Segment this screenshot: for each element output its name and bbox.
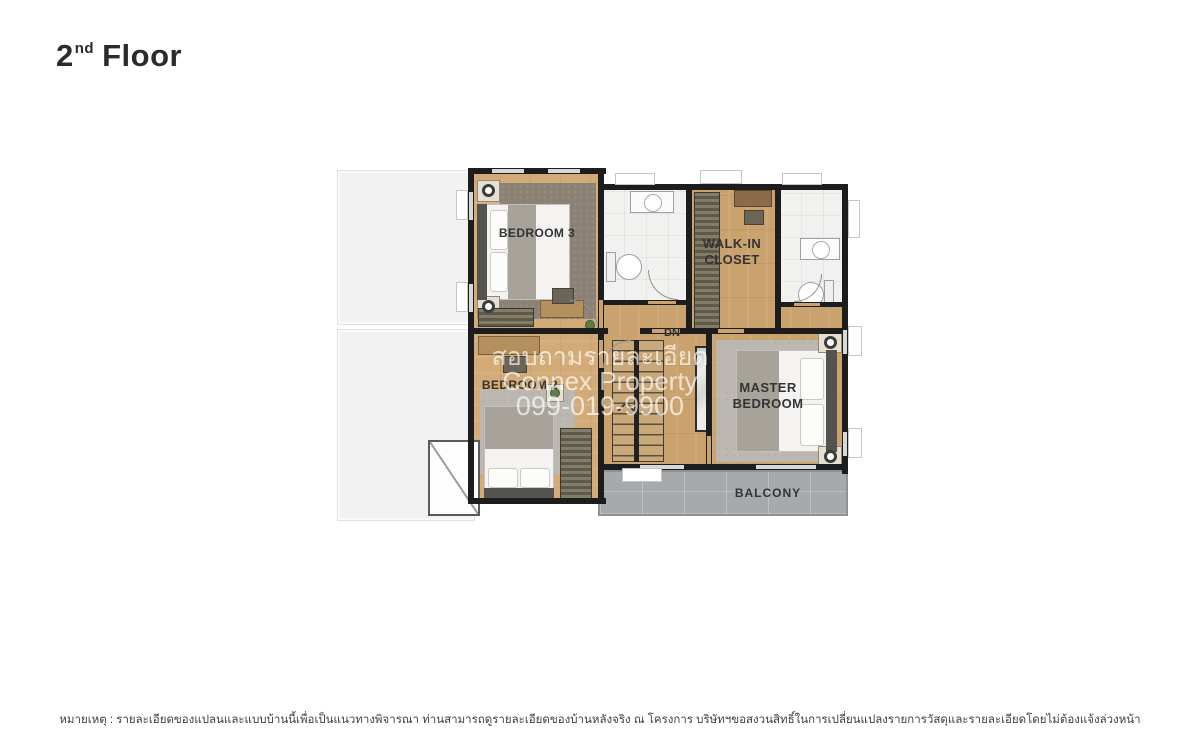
window bbox=[622, 468, 662, 482]
wall-top-bedroom3 bbox=[468, 168, 606, 174]
roof-panel-top bbox=[337, 170, 475, 325]
floor-plan-page: 2ndFloor bbox=[0, 0, 1200, 750]
lamp-icon bbox=[482, 300, 495, 313]
door-opening bbox=[707, 436, 711, 464]
walk-in-closet-label: WALK-IN CLOSET bbox=[692, 236, 772, 268]
window-gap bbox=[548, 169, 580, 173]
bedroom3-blanket bbox=[508, 205, 536, 299]
bedroom2-headboard bbox=[484, 488, 554, 498]
window bbox=[848, 326, 862, 356]
window-gap bbox=[843, 432, 847, 456]
window-gap bbox=[843, 330, 847, 354]
lamp-icon bbox=[824, 336, 837, 349]
window bbox=[700, 170, 742, 184]
window bbox=[848, 428, 862, 458]
stairs-down-label: DN bbox=[664, 327, 680, 339]
window-gap bbox=[469, 284, 473, 312]
window-gap bbox=[469, 192, 473, 220]
window bbox=[848, 200, 860, 238]
lamp-icon bbox=[824, 450, 837, 463]
watermark-phone-line: 099-019-9900 bbox=[440, 394, 760, 418]
walk-in-dresser bbox=[734, 190, 772, 207]
bedroom3-pillow-2 bbox=[490, 252, 508, 292]
window bbox=[456, 282, 468, 312]
bedroom2-pillow-1 bbox=[488, 468, 518, 488]
bedroom2-pillow-2 bbox=[520, 468, 550, 488]
window bbox=[456, 190, 468, 220]
wall-mid-left bbox=[468, 328, 608, 334]
door-opening bbox=[599, 300, 603, 328]
balcony-label: BALCONY bbox=[725, 486, 811, 500]
bedroom2-wardrobe bbox=[560, 428, 592, 500]
window-gap bbox=[492, 169, 524, 173]
bathroom2-toilet-tank bbox=[606, 252, 616, 282]
wall-bedroom2-bottom bbox=[468, 498, 606, 504]
door-opening bbox=[648, 301, 676, 304]
walk-in-stool bbox=[744, 210, 764, 225]
window bbox=[782, 173, 822, 185]
lamp-icon bbox=[482, 184, 495, 197]
wall-wic-masterbath bbox=[775, 184, 781, 334]
door-opening bbox=[718, 329, 744, 333]
bedroom3-headboard bbox=[477, 204, 487, 300]
window bbox=[615, 173, 655, 185]
walk-in-line2: CLOSET bbox=[692, 252, 772, 268]
bathroom2-toilet-bowl bbox=[616, 254, 642, 280]
bathroom2-basin bbox=[644, 194, 662, 212]
master-headboard bbox=[826, 350, 837, 452]
watermark: สอบถามรายละเอียด Connex Property 099-019… bbox=[440, 346, 760, 418]
door-opening bbox=[794, 303, 820, 306]
balcony-door-gap bbox=[756, 465, 816, 469]
bedroom3-label: BEDROOM 3 bbox=[492, 226, 582, 240]
watermark-thai-line: สอบถามรายละเอียด bbox=[440, 346, 760, 368]
walk-in-line1: WALK-IN bbox=[692, 236, 772, 252]
master-bath-basin bbox=[812, 241, 830, 259]
disclaimer-note: หมายเหตุ : รายละเอียดของแปลนและแบบบ้านนี… bbox=[0, 711, 1200, 729]
